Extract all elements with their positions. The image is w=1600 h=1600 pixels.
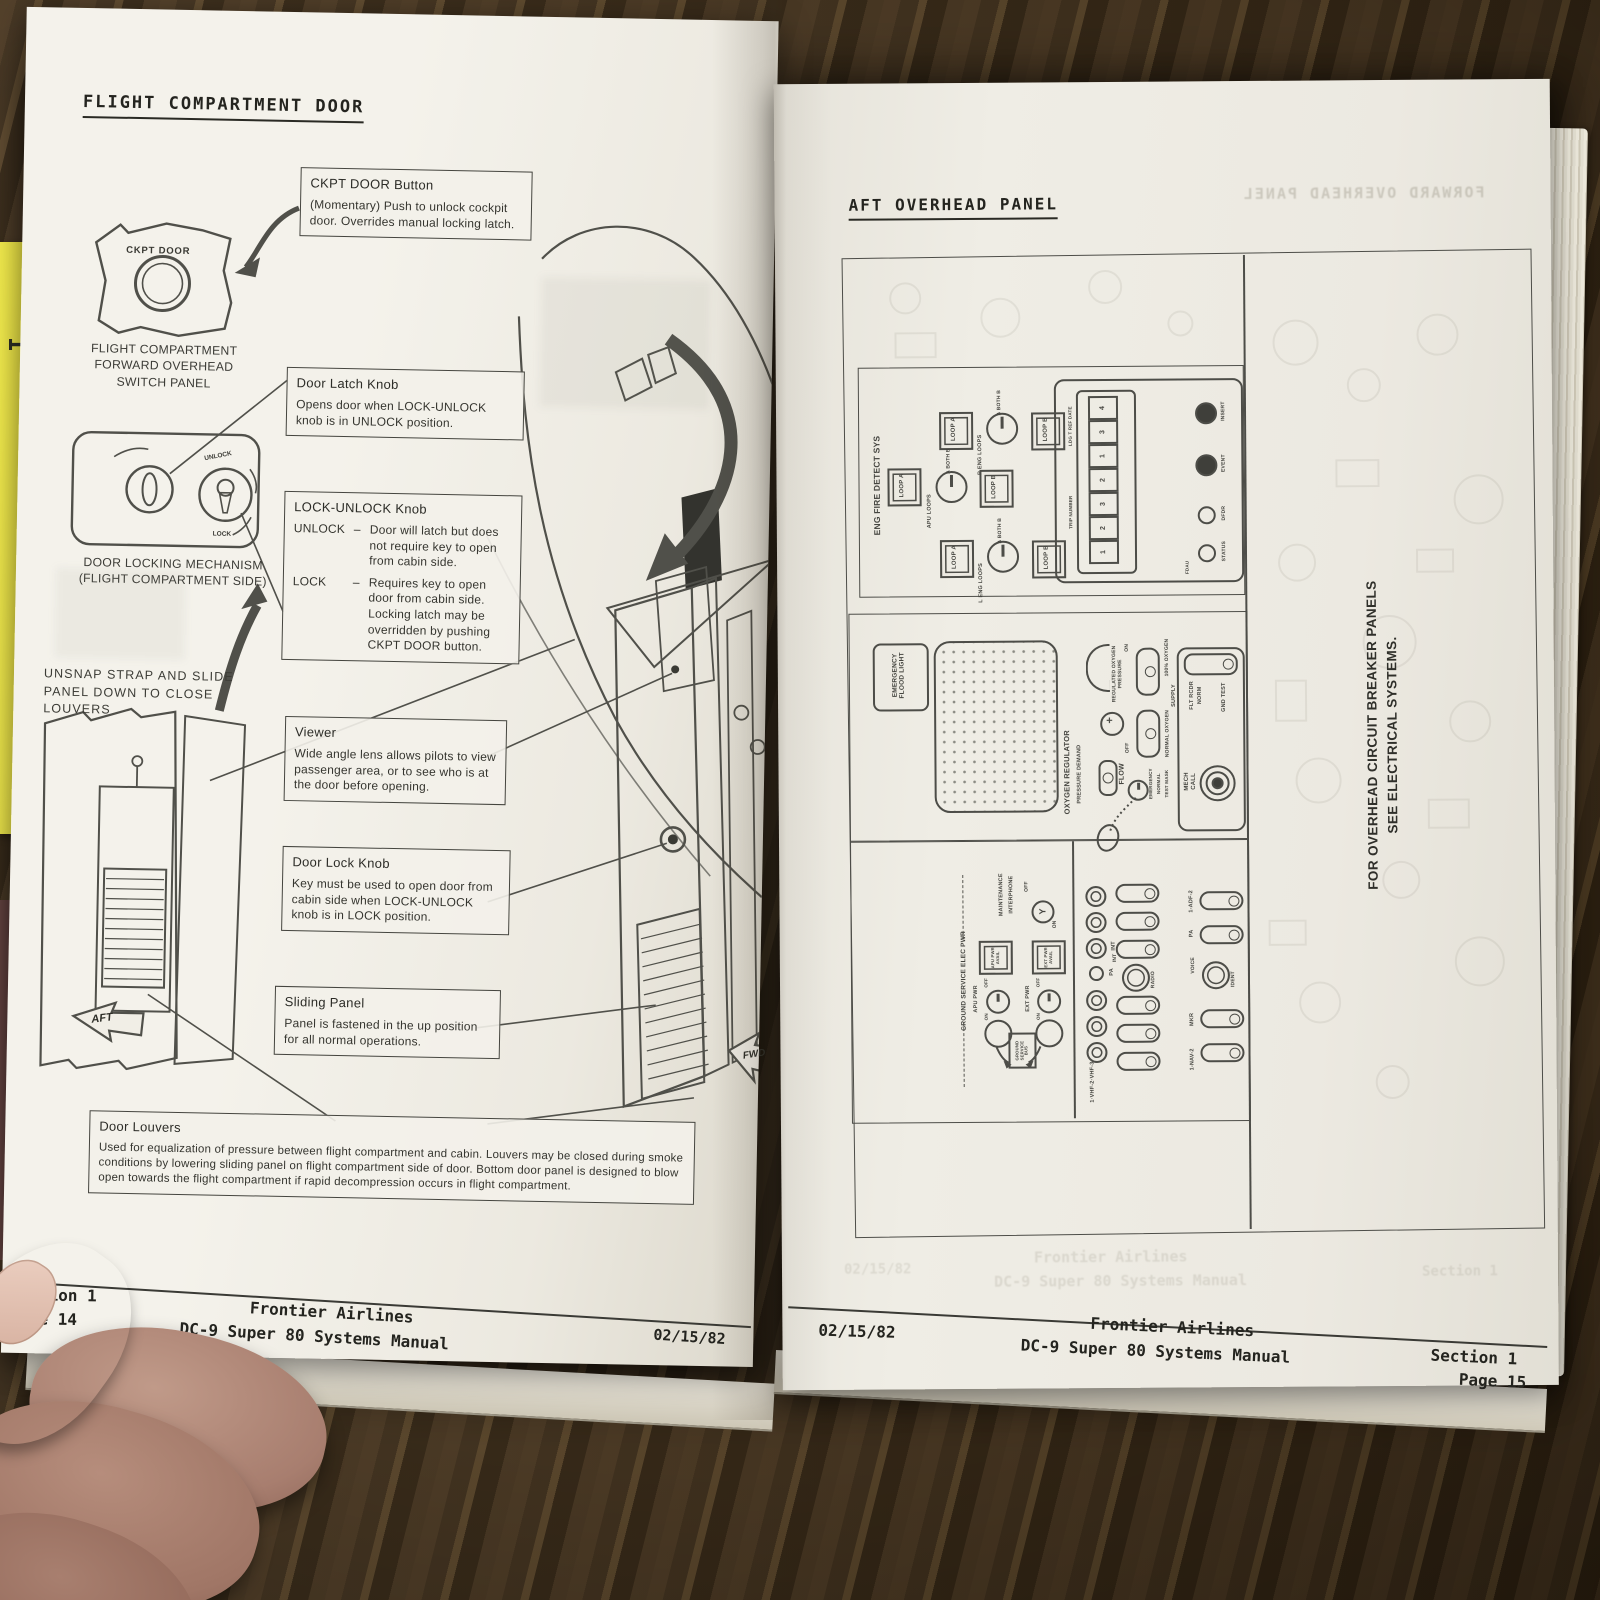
pressure-demand-label: PRESSURE DEMAND	[1076, 745, 1083, 804]
thumbwheel-digit: 3	[1089, 492, 1119, 516]
bottom-panel-box	[850, 838, 1251, 1124]
ground-service-bracket-label: GROUND SERVICE ELEC PWR	[960, 931, 968, 1031]
apu-on-label: ON	[984, 1013, 989, 1020]
speaker-grille	[934, 640, 1059, 813]
right-footer-page: Page 15	[1458, 1370, 1526, 1392]
audio-toggle	[1115, 884, 1159, 903]
pa-label: PA	[1109, 968, 1115, 976]
digit: 3	[1100, 502, 1108, 506]
test-mask-label: TEST MASK	[1164, 770, 1169, 798]
bleed-through-smudge	[54, 568, 186, 660]
voice-label: VOICE	[1191, 957, 1197, 974]
audio-toggle	[1200, 1043, 1244, 1062]
audio-toggle	[1116, 940, 1160, 959]
maint-on-label: ON	[1053, 920, 1059, 928]
int-knob-label: INT	[1113, 954, 1119, 963]
right-page: AFT OVERHEAD PANEL FORWARD OVERHEAD PANE…	[774, 79, 1559, 1390]
mic-button	[1086, 990, 1107, 1011]
lock-unlock-definition-list: UNLOCK – Door will latch but does not re…	[291, 521, 511, 656]
ext-pwr-avail-label: EXT PWR AVAIL	[1044, 944, 1054, 970]
mech-call-button-inner	[1212, 777, 1224, 789]
dash-2: –	[351, 575, 364, 653]
norm-label: NORM	[1197, 686, 1203, 704]
callout-ckpt-door-button: CKPT DOOR Button (Momentary) Push to unl…	[299, 167, 532, 241]
apu-pwr-switch	[986, 990, 1010, 1014]
right-footer-section: Section 1	[1430, 1345, 1517, 1368]
mic-button	[1086, 938, 1107, 959]
apu-pwr-avail-light: APU PWR AVAIL	[979, 941, 1013, 975]
ext-pwr-switch	[1037, 989, 1061, 1013]
voice-ident-knob	[1202, 961, 1230, 989]
audio-toggle	[1116, 996, 1160, 1015]
photo-of-open-manual: 1 AIRPLANE	[0, 0, 1600, 1600]
vhf-selector-label: 1·VHF-2·VHF-3	[1089, 1062, 1095, 1103]
term-lock: LOCK	[291, 574, 348, 653]
oxygen-100-label: 100% OXYGEN	[1165, 639, 1171, 677]
left-page-title: FLIGHT COMPARTMENT DOOR	[83, 92, 365, 123]
bus-feed-arrows	[978, 1038, 1058, 1079]
status-light	[1198, 544, 1216, 562]
thumbwheel-digit: 1	[1088, 444, 1118, 468]
circuit-breaker-side-note-line1: FOR OVERHEAD CIRCUIT BREAKER PANELS	[1364, 580, 1381, 889]
digit: 1	[1100, 550, 1108, 554]
def-unlock: Door will latch but does not require key…	[369, 523, 512, 572]
loop-b-label: LOOP B	[991, 475, 998, 499]
digit: 3	[1099, 430, 1107, 434]
callout-lock-unlock-knob: LOCK-UNLOCK Knob UNLOCK – Door will latc…	[281, 491, 522, 664]
apu-loops-knob	[935, 471, 967, 503]
switch-panel-caption: FLIGHT COMPARTMENT FORWARD OVERHEAD SWIT…	[79, 340, 248, 393]
oxygen-supply-lever-bottom	[1136, 710, 1160, 758]
flow-label: FLOW	[1119, 763, 1127, 784]
l-eng-loops-positions: A BOTH B	[998, 518, 1004, 544]
apu-loops-label: APU LOOPS	[927, 494, 933, 528]
callout-door-latch-title: Door Latch Knob	[296, 375, 514, 394]
adf-label: 1-ADF-2	[1188, 890, 1194, 913]
r-eng-loops-positions: A BOTH B	[997, 390, 1003, 416]
callout-door-lock-knob: Door Lock Knob Key must be used to open …	[281, 846, 511, 935]
mkr-label: MKR	[1189, 1013, 1195, 1026]
callout-sliding-title: Sliding Panel	[285, 994, 491, 1013]
oxygen-supply-lever-top	[1136, 648, 1160, 696]
callout-viewer: Viewer Wide angle lens allows pilots to …	[284, 716, 508, 805]
loop-a-label: LOOP A	[951, 417, 958, 441]
ext-off-label: OFF	[1035, 978, 1040, 988]
switch-panel-caption-line2: FORWARD OVERHEAD	[80, 356, 248, 376]
trip-number-label: TRIP NUMBER	[1068, 496, 1073, 529]
loop-b-label: LOOP B	[1044, 545, 1051, 569]
callout-viewer-body: Wide angle lens allows pilots to view pa…	[294, 746, 497, 797]
pa2-label: PA	[1189, 930, 1195, 938]
switch-panel-caption-line3: SWITCH PANEL	[79, 373, 247, 393]
thumbwheel-digit: 1	[1089, 540, 1119, 564]
gnd-test-label: GND TEST	[1221, 682, 1227, 711]
ghost-footer-section: Section 1	[1422, 1263, 1498, 1280]
ext-pwr-avail-light: EXT PWR AVAIL	[1032, 940, 1066, 974]
cross-mark: +	[1106, 715, 1113, 727]
digit: 4	[1099, 406, 1107, 410]
mic-button-small	[1089, 966, 1104, 981]
aft-direction-label: AFT	[91, 1011, 114, 1025]
mic-button	[1086, 1016, 1107, 1037]
ghost-footer-manual: DC-9 Super 80 Systems Manual	[994, 1271, 1247, 1291]
ghost-mirrored-title: FORWARD OVERHEAD PANEL	[1024, 183, 1484, 204]
audio-toggle	[1199, 891, 1243, 910]
callout-door-latch-knob: Door Latch Knob Opens door when LOCK-UNL…	[286, 367, 525, 441]
mech-call-label: MECH CALL	[1184, 764, 1198, 798]
right-footer-date: 02/15/82	[818, 1321, 896, 1342]
flow-indicator	[1098, 760, 1117, 796]
ext-on-label: ON	[1036, 1013, 1041, 1020]
apu-off-label: OFF	[983, 978, 988, 988]
event-label: EVENT	[1222, 454, 1228, 472]
supply-on-label: ON	[1125, 644, 1131, 652]
y-jack-glyph: Y	[1037, 908, 1047, 914]
ghost-footer-company: Frontier Airlines	[1034, 1247, 1188, 1266]
bleed-through-smudge	[539, 277, 711, 410]
loop-a-label: LOOP A	[952, 545, 959, 569]
lock-position-label: LOCK	[213, 531, 232, 538]
apu-pwr-avail-label: APU PWR AVAIL	[991, 945, 1001, 971]
flt-rcdr-switch	[1184, 653, 1238, 675]
mic-button	[1085, 886, 1106, 907]
int-radio-volume-knob	[1122, 964, 1150, 992]
r-eng-loops-knob	[986, 413, 1018, 445]
ckpt-door-switch-label: CKPT DOOR	[126, 245, 190, 257]
digit: 1	[1099, 454, 1107, 458]
emergency-flood-light-label: EMERGENCY FLOOD LIGHT	[891, 646, 906, 704]
callout-door-louvers: Door Louvers Used for equalization of pr…	[88, 1110, 695, 1204]
fdau-label: FDAU	[1185, 561, 1190, 574]
audio-toggle	[1200, 1009, 1244, 1028]
ldg-t-ref-date-label: LDG T REF DATE	[1067, 406, 1072, 446]
digit: 2	[1100, 478, 1108, 482]
audio-toggle	[1116, 1052, 1160, 1071]
thumbwheel-digit: 3	[1088, 420, 1118, 444]
apu-loops-positions: A BOTH B	[946, 448, 952, 474]
callout-louvers-body: Used for equalization of pressure betwee…	[98, 1140, 685, 1196]
thumbwheel-digit: 4	[1088, 396, 1118, 420]
l-eng-loops-label: L ENG LOOPS	[978, 563, 984, 603]
supply-off-label: OFF	[1126, 742, 1132, 753]
thumbwheel-digit: 2	[1088, 468, 1118, 492]
insert-button	[1195, 402, 1217, 424]
maint-off-label: OFF	[1024, 881, 1030, 892]
maintenance-label: MAINTENANCE	[998, 873, 1004, 916]
left-page: FLIGHT COMPARTMENT DOOR CKPT DOOR FLIGHT…	[1, 7, 779, 1367]
ghost-footer-date: 02/15/82	[844, 1261, 912, 1277]
unsnap-strap-note: UNSNAP STRAP AND SLIDE PANEL DOWN TO CLO…	[43, 665, 236, 721]
callout-sliding-panel: Sliding Panel Panel is fastened in the u…	[274, 986, 501, 1060]
loop-b-label: LOOP B	[1043, 417, 1050, 441]
circuit-breaker-side-note-line2: SEE ELECTRICAL SYSTEMS.	[1384, 636, 1400, 833]
thumbwheel-digit: 2	[1089, 516, 1119, 540]
callout-lock-unlock-title: LOCK-UNLOCK Knob	[294, 499, 512, 518]
callout-door-lock-title: Door Lock Knob	[292, 854, 500, 873]
def-lock: Requires key to open door from cabin sid…	[367, 575, 510, 656]
flt-rcdr-label: FLT RCDR	[1189, 681, 1195, 710]
callout-viewer-title: Viewer	[295, 724, 497, 743]
callout-louvers-title: Door Louvers	[99, 1118, 685, 1144]
callout-ckpt-door-body: (Momentary) Push to unlock cockpit door.…	[310, 197, 523, 232]
dfdr-light	[1198, 506, 1216, 524]
loop-a-label: LOOP A	[899, 473, 906, 497]
eng-fire-detect-label: ENG FIRE DETECT SYS	[872, 436, 882, 536]
ext-pwr-label: EXT PWR	[1025, 985, 1031, 1012]
ident-label: IDENT	[1231, 971, 1237, 987]
regulated-oxygen-pressure-label: REGULATED OXYGEN PRESSURE	[1112, 642, 1124, 706]
status-label: STATUS	[1222, 541, 1228, 562]
callout-door-latch-body: Opens door when LOCK-UNLOCK knob is in U…	[296, 397, 515, 432]
term-unlock: UNLOCK	[293, 521, 350, 569]
dash-1: –	[353, 522, 366, 569]
normal-label: NORMAL	[1156, 773, 1161, 794]
mic-button	[1086, 1042, 1107, 1063]
callout-sliding-body: Panel is fastened in the up position for…	[284, 1016, 491, 1051]
radio-knob-label: RADIO	[1151, 971, 1157, 988]
oxygen-regulator-label: OXYGEN REGULATOR	[1063, 730, 1072, 814]
mic-button	[1086, 912, 1107, 933]
audio-toggle	[1116, 1024, 1160, 1043]
dfdr-label: DFDR	[1222, 506, 1228, 521]
callout-door-lock-body: Key must be used to open door from cabin…	[291, 876, 500, 927]
callout-ckpt-door-title: CKPT DOOR Button	[310, 175, 522, 194]
apu-pwr-label: APU PWR	[973, 985, 979, 1012]
interphone-label: INTERPHONE	[1008, 876, 1014, 914]
l-eng-loops-knob	[987, 541, 1019, 573]
oxygen-diluter-knob: +	[1100, 712, 1124, 736]
digit: 2	[1100, 526, 1108, 530]
nav-label: 1-NAV-2	[1189, 1048, 1195, 1070]
insert-label: INSERT	[1221, 401, 1227, 421]
normal-oxygen-label: NORMAL OXYGEN	[1165, 710, 1171, 757]
audio-toggle	[1200, 925, 1244, 944]
audio-toggle	[1116, 912, 1160, 931]
event-button	[1195, 454, 1217, 476]
